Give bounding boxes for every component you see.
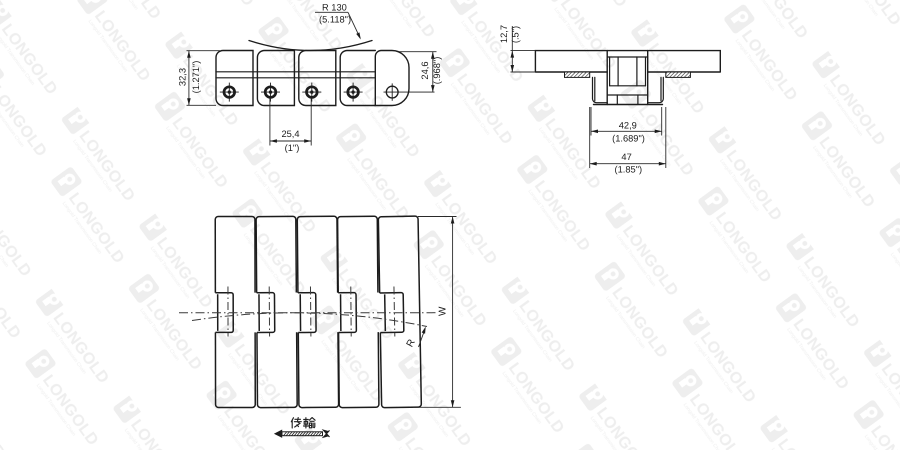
svg-text:(.968"): (.968"): [432, 57, 442, 85]
svg-text:R 130: R 130: [322, 3, 347, 13]
svg-text:W: W: [438, 306, 449, 316]
svg-text:(1.689"): (1.689"): [612, 133, 645, 143]
svg-text:32,3: 32,3: [178, 68, 188, 86]
svg-text:24,6: 24,6: [420, 61, 430, 79]
svg-text:(1.271"): (1.271"): [191, 61, 201, 94]
svg-text:(1.85"): (1.85"): [615, 164, 643, 174]
svg-text:(5.118"): (5.118"): [319, 15, 351, 25]
svg-text:47: 47: [621, 152, 631, 162]
svg-text:12,7: 12,7: [499, 25, 509, 43]
svg-text:42,9: 42,9: [619, 121, 637, 131]
svg-text:(1"): (1"): [285, 143, 300, 153]
svg-text:(.5"): (.5"): [511, 26, 521, 43]
svg-text:25,4: 25,4: [281, 129, 299, 139]
